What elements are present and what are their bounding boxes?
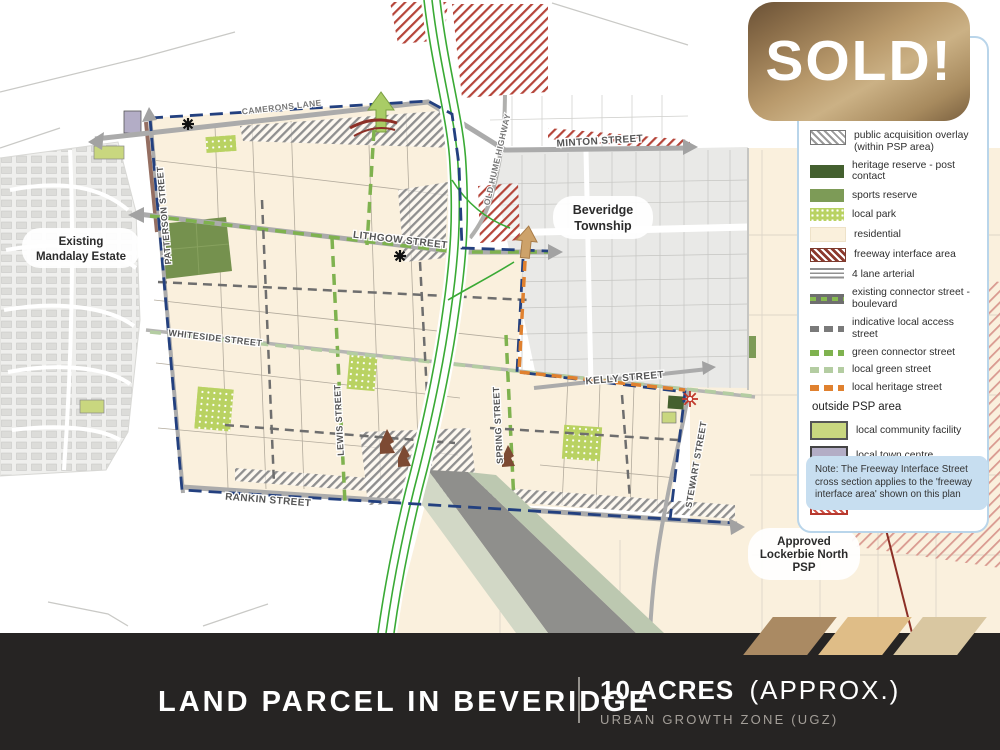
legend-item-heritage-reserve: heritage reserve - post contact	[810, 160, 979, 184]
asterisk-marker	[394, 250, 406, 262]
heritage-reserve	[668, 395, 685, 409]
legend-label: local heritage street	[852, 382, 942, 394]
mandalay-estate	[0, 111, 141, 476]
legend-item-residential: residential	[810, 227, 979, 242]
freeway-interface-hatch	[452, 4, 548, 98]
acreage-value: 10 ACRES	[600, 675, 734, 705]
legend-item-connector-boulevard: existing connector street - boulevard	[810, 287, 979, 311]
legend-label: residential	[854, 229, 901, 241]
mandalay-label: Mandalay Estate	[36, 251, 126, 263]
boulevard-swatch	[810, 294, 844, 304]
legend-item-green-connector: green connector street	[810, 347, 979, 359]
heritage-starburst	[682, 391, 698, 407]
acreage: 10 ACRES (APPROX.)	[600, 675, 900, 706]
legend-label: existing connector street - boulevard	[852, 287, 979, 311]
legend-label: public acquisition overlay (within PSP a…	[854, 130, 979, 154]
note-text: Note: The Freeway Interface Street cross…	[815, 464, 972, 500]
footer-details: 10 ACRES (APPROX.) URBAN GROWTH ZONE (UG…	[600, 675, 900, 727]
lockerbie-label: Lockerbie North	[760, 549, 848, 561]
acreage-approx: (APPROX.)	[749, 675, 900, 705]
community-facility-swatch	[810, 421, 848, 440]
asterisk-marker	[182, 118, 194, 130]
legend-label: 4 lane arterial	[852, 269, 914, 281]
local-park-swatch	[810, 208, 844, 221]
heritage-street-swatch	[810, 385, 844, 391]
legend-item-freeway-interface: freeway interface area	[810, 248, 979, 262]
green-connector-swatch	[810, 350, 844, 356]
zone-subtitle: URBAN GROWTH ZONE (UGZ)	[600, 712, 900, 727]
sports-reserve-swatch	[810, 189, 844, 202]
local-park	[562, 425, 602, 462]
freeway-interface-swatch	[810, 248, 846, 262]
legend-item-sports-reserve: sports reserve	[810, 189, 979, 202]
legend-label: indicative local access street	[852, 317, 979, 341]
local-park	[205, 135, 236, 153]
legend-item-public-acquisition-psp: public acquisition overlay (within PSP a…	[810, 130, 979, 154]
community-facility-patch	[662, 412, 676, 423]
legend-item-local-green: local green street	[810, 364, 979, 376]
mandalay-label: Existing	[59, 236, 104, 248]
sold-badge: SOLD!	[748, 2, 970, 121]
local-green-swatch	[810, 367, 844, 373]
hatch-swatch	[810, 130, 846, 145]
footer-divider	[578, 677, 580, 723]
legend-label: local community facility	[856, 425, 961, 437]
township-label: Township	[574, 219, 632, 233]
residential-swatch	[810, 227, 846, 242]
community-facility-patch	[80, 400, 104, 413]
legend-label: heritage reserve - post contact	[852, 160, 979, 184]
lockerbie-label: PSP	[792, 562, 815, 574]
sold-badge-label: SOLD!	[765, 33, 952, 90]
legend-item-local-park: local park	[810, 208, 979, 221]
flyer: CAMERONS LANE MINTON STREET LITHGOW STRE…	[0, 0, 1000, 750]
legend-item-4-lane-arterial: 4 lane arterial	[810, 268, 979, 281]
local-park	[347, 355, 378, 391]
heritage-reserve-swatch	[810, 165, 844, 178]
legend-label: local park	[852, 209, 896, 221]
legend-item-local-heritage: local heritage street	[810, 382, 979, 394]
town-centre-patch	[124, 111, 141, 133]
legend-label: sports reserve	[852, 190, 917, 202]
access-street-swatch	[810, 326, 844, 332]
legend-label: green connector street	[852, 347, 955, 359]
township-label: Beveridge	[573, 203, 633, 217]
arterial-swatch	[810, 268, 844, 281]
legend-label: freeway interface area	[854, 249, 956, 261]
legend-label: local green street	[852, 364, 931, 376]
lockerbie-label: Approved	[777, 536, 831, 548]
note-box: Note: The Freeway Interface Street cross…	[806, 456, 988, 510]
legend-outside-header: outside PSP area	[812, 401, 979, 413]
legend-item-community-facility: local community facility	[810, 421, 979, 440]
legend-item-local-access: indicative local access street	[810, 317, 979, 341]
